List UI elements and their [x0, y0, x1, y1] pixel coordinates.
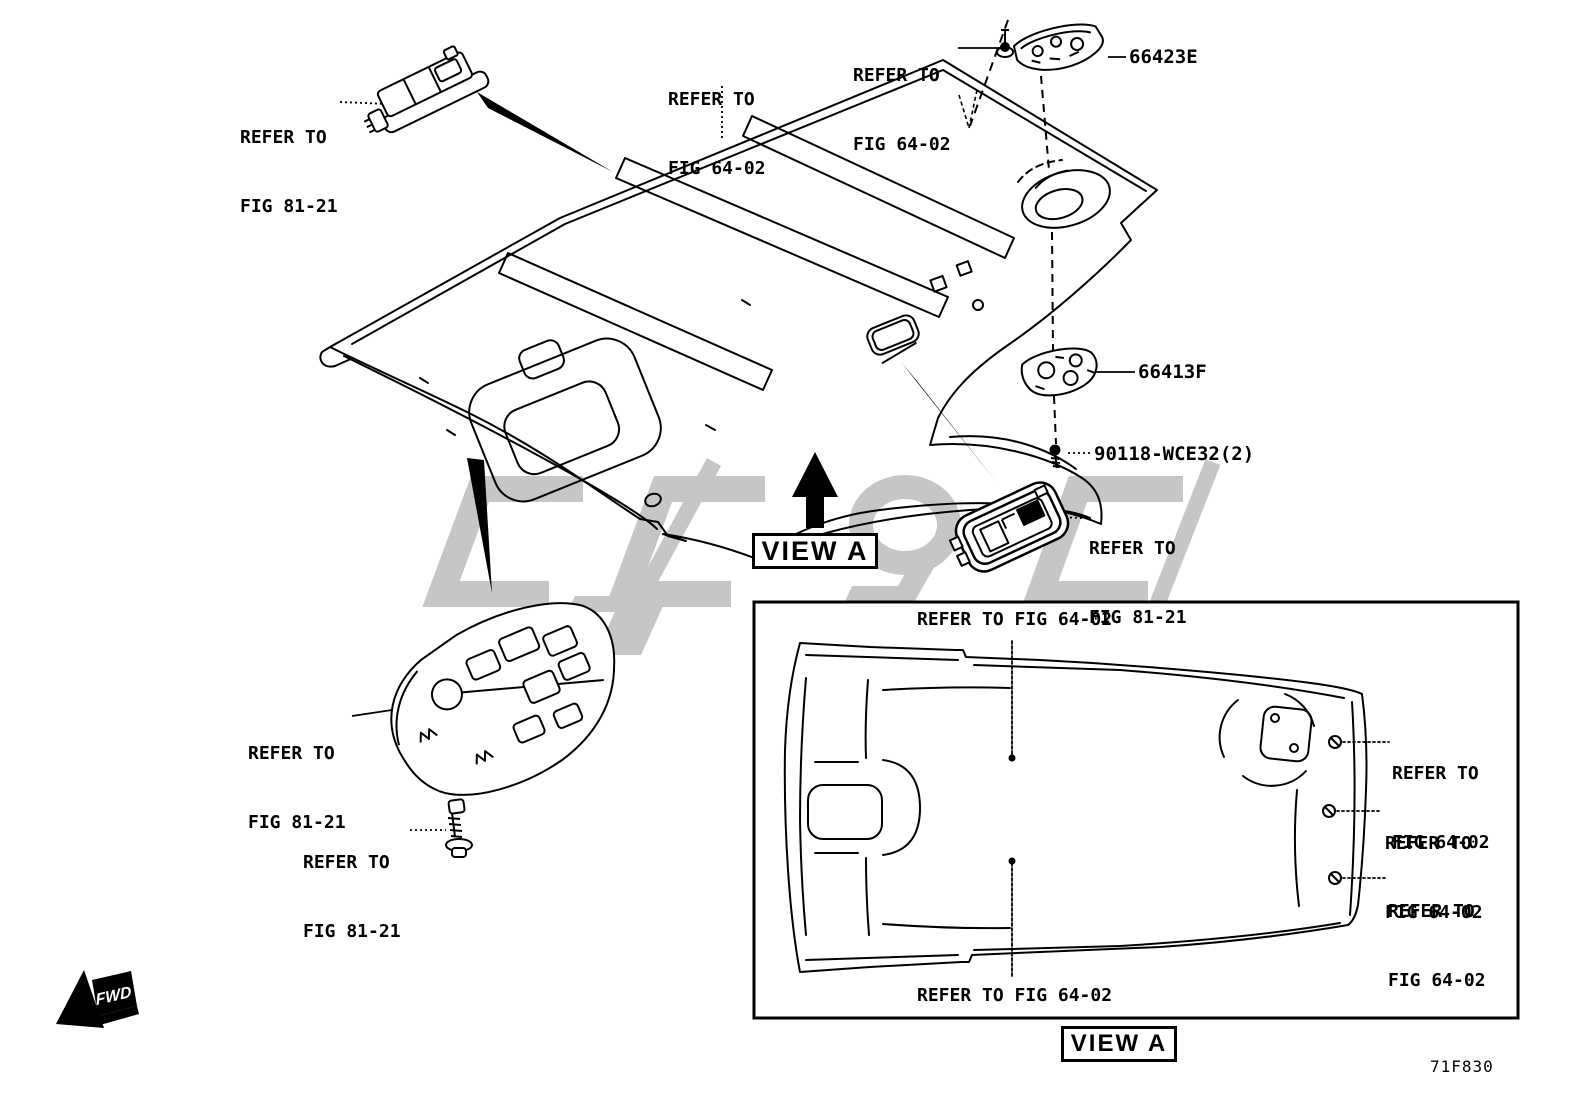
wedge-to-roof-front — [477, 92, 613, 172]
callout-roof-trim-left: REFER TO FIG 64-02 — [668, 42, 766, 226]
view-a-label-box: VIEW A — [752, 533, 878, 569]
center-lamp-66413f-part — [1018, 342, 1101, 402]
callout-front-map-lamp: REFER TO FIG 81-21 — [240, 80, 338, 264]
rear-lamp-66423e-part — [1012, 18, 1107, 78]
callout-dome-lamp: REFER TO FIG 81-21 — [1089, 491, 1187, 675]
front-map-lamp-part — [351, 39, 490, 142]
overhead-console-part — [365, 578, 649, 821]
console-screw-part — [446, 799, 472, 857]
view-a-up-arrow — [792, 452, 838, 528]
part-number-90118: 90118-WCE32(2) — [1094, 443, 1254, 465]
wedge-to-dome-lamp — [901, 362, 997, 483]
fwd-arrow: FWD — [56, 970, 139, 1028]
view-a-detail-label-box: VIEW A — [1061, 1026, 1177, 1062]
callout-roof-trim-clip: REFER TO FIG 64-02 — [853, 18, 951, 202]
part-number-66423e: 66423E — [1129, 46, 1198, 68]
part-number-66413f: 66413F — [1138, 361, 1207, 383]
parts-diagram-page: FWD REFER TO FIG 81-21 REFER TO FIG 64-0… — [0, 0, 1592, 1099]
callout-detail-right-3: REFER TO FIG 64-02 — [1388, 854, 1486, 1038]
callout-console-screw: REFER TO FIG 81-21 — [303, 805, 401, 989]
callout-detail-bottom: REFER TO FIG 64-02 — [917, 984, 1112, 1007]
callout-detail-top: REFER TO FIG 64-02 — [917, 608, 1112, 631]
figure-code: 71F830 — [1430, 1057, 1494, 1076]
roof-clip — [997, 30, 1013, 57]
